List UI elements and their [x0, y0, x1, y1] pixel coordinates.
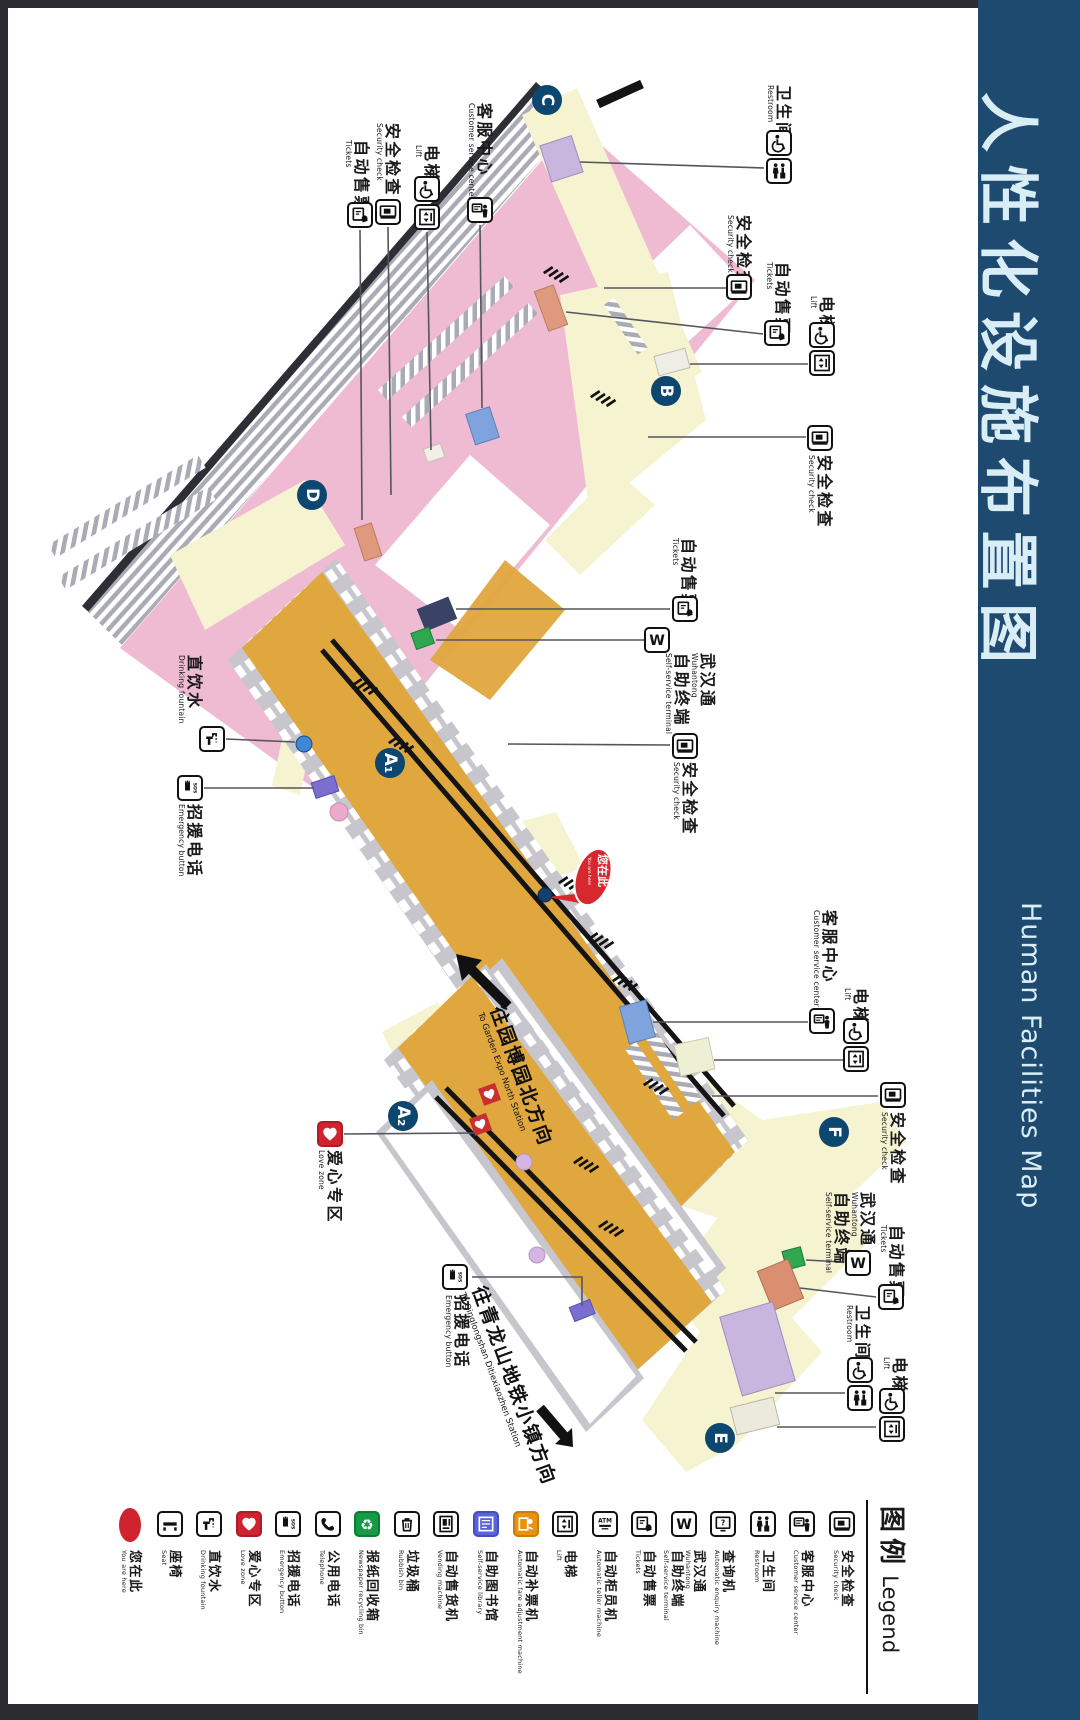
- drinking-fountain-marker: [296, 736, 312, 752]
- seat-marker-a1: [330, 803, 348, 821]
- legend-enquiry-text: 查询机Automatic enquiry machine: [712, 1550, 734, 1645]
- legend-phone-text: 公用电话Telephone: [317, 1550, 339, 1608]
- entrance-badge-B: B: [651, 376, 681, 406]
- csc-legend-icon: [789, 1511, 815, 1537]
- svg-text:W: W: [676, 1517, 692, 1533]
- legend-heart-text: 爱心专区Love zone: [238, 1550, 260, 1608]
- wheelchair-icon: [766, 130, 792, 156]
- legend-fareadj-text: 自动补票机Automatic fare adjustment machine: [515, 1550, 537, 1674]
- lift-icon: [809, 350, 835, 376]
- w-icon: W: [845, 1250, 871, 1276]
- entrance-badge-E: E: [705, 1423, 735, 1453]
- tvm-icon: [764, 320, 790, 346]
- vending-legend-icon: [433, 1511, 459, 1537]
- entrance-badge-A: A₂: [388, 1101, 418, 1131]
- legend-recycle-text: 报纸回收箱Newspaper recycling bin: [357, 1550, 379, 1635]
- svg-text:W: W: [850, 1256, 866, 1272]
- page-title-zh: 人性化设施布置图: [969, 92, 1056, 676]
- legend-security-text: 安全检查Security check: [831, 1550, 853, 1608]
- sos-icon: SOS: [177, 775, 203, 801]
- svg-text:?: ?: [721, 1519, 725, 1528]
- tvm-icon: [347, 202, 373, 228]
- legend-wc-text: 卫生间Restroom: [752, 1550, 774, 1594]
- fountain-a1-text: 直饮水Drinking fountain: [177, 655, 203, 724]
- security-c-text: 安全检查Security check: [375, 123, 401, 197]
- security-icon: [807, 425, 833, 451]
- security-icon: [880, 1082, 906, 1108]
- legend-seat-text: 座椅Seat: [159, 1550, 181, 1579]
- svg-text:♻: ♻: [361, 1516, 374, 1534]
- you-are-here-en: You are here: [586, 856, 592, 885]
- legend-w-text: 武汉通Wuhantong自助终端Self-service terminal: [661, 1550, 705, 1621]
- facilities-map-page: 您在此 You are here 人性化设施布置图 Human Faciliti…: [0, 0, 1080, 1720]
- seat-marker-a2-1: [516, 1154, 532, 1170]
- security-mid-text: 安全检查Security check: [672, 762, 698, 836]
- faucet-legend-icon: [196, 1511, 222, 1537]
- lift-icon: [879, 1416, 905, 1442]
- tvm-icon: [672, 596, 698, 622]
- page-title-en: Human Facilities Map: [1015, 902, 1046, 1209]
- legend-sos-text: 招援电话Emergency button: [277, 1550, 299, 1613]
- wheelchair-icon: [809, 322, 835, 348]
- w-icon: W: [644, 627, 670, 653]
- heart-legend-icon: [236, 1511, 262, 1537]
- legend-youarehere-text: 您在此You are here: [119, 1550, 141, 1594]
- security-mid-leader: [508, 744, 670, 745]
- sos-legend-icon: SOS: [275, 1511, 301, 1537]
- enquiry-legend-icon: ?: [710, 1511, 736, 1537]
- legend-vending-text: 自动售货机Vending machine: [436, 1550, 458, 1623]
- entrance-badge-D: D: [297, 480, 327, 510]
- entrance-badge-F: F: [819, 1117, 849, 1147]
- sos-a1-text: 招援电话Emergency button: [177, 804, 203, 878]
- legend-csc-text: 客服中心Customer service center: [792, 1550, 814, 1635]
- title-bar: 人性化设施布置图 Human Facilities Map: [978, 0, 1080, 1720]
- legend-library-text: 自助图书馆Self-service library: [475, 1550, 497, 1623]
- security-icon: [672, 733, 698, 759]
- svg-text:ATM: ATM: [598, 1518, 612, 1524]
- csc-f-text: 客服中心Customer service center: [812, 910, 838, 1007]
- seat-marker-a2-2: [529, 1247, 545, 1263]
- security-b2-text: 安全检查Security check: [807, 455, 833, 529]
- legend-divider: [866, 1500, 868, 1694]
- legend-header-en: Legend: [878, 1575, 902, 1653]
- restroom-e-text: 卫生间Restroom: [845, 1305, 871, 1361]
- csc-c-text: 客服中心Customer service center: [467, 103, 493, 200]
- wuhantong-mid-text: 武汉通Wuhantong自助终端Self-service terminal: [664, 653, 716, 734]
- csc-icon: [467, 197, 493, 223]
- security-icon: [726, 274, 752, 300]
- tvm-legend-icon: [631, 1511, 657, 1537]
- atm-legend-icon: ATM: [592, 1511, 618, 1537]
- legend-tvm-text: 自动售票Tickets: [633, 1550, 655, 1608]
- entrance-badge-A: A₁: [375, 748, 405, 778]
- legend-atm-text: 自动柜员机Automatic teller machine: [594, 1550, 616, 1637]
- legend-lift-text: 电梯Lift: [554, 1550, 576, 1579]
- legend-header-zh: 图例: [876, 1506, 906, 1570]
- phone-legend-icon: [315, 1511, 341, 1537]
- frame-bottom: [0, 1704, 978, 1720]
- lovezone-a2-text: 爱心专区Love zone: [317, 1150, 343, 1224]
- seat-legend-icon: [157, 1511, 183, 1537]
- wheelchair-icon: [414, 176, 440, 202]
- you-are-here-legend-marker: [119, 1508, 141, 1542]
- frame-left: [0, 0, 8, 1720]
- lift-icon: [843, 1046, 869, 1072]
- svg-text:SOS: SOS: [191, 783, 197, 794]
- security-f-text: 安全检查Security check: [880, 1112, 906, 1186]
- wc-legend-icon: [750, 1511, 776, 1537]
- sos-a2-text: 招援电话Emergency button: [444, 1295, 470, 1369]
- csc-icon: [809, 1008, 835, 1034]
- wc-icon: [766, 158, 792, 184]
- you-are-here-dot: [538, 888, 552, 902]
- entrance-badge-C: C: [532, 85, 562, 115]
- recycle-legend-icon: ♻: [354, 1511, 380, 1537]
- svg-text:SOS: SOS: [456, 1272, 462, 1283]
- wc-icon: [847, 1385, 873, 1411]
- lift-icon: [414, 204, 440, 230]
- heart-icon: [317, 1121, 343, 1147]
- lift-legend-icon: [552, 1511, 578, 1537]
- wheelchair-icon: [843, 1018, 869, 1044]
- wheelchair-icon: [879, 1388, 905, 1414]
- fareadj-legend-icon: [513, 1511, 539, 1537]
- security-icon: [375, 199, 401, 225]
- security-legend-icon: [829, 1511, 855, 1537]
- w-legend-icon: W: [671, 1511, 697, 1537]
- legend-bin-text: 垃圾桶Rubbish bin: [396, 1550, 418, 1594]
- lovezone-a2-leader: [344, 1133, 476, 1134]
- bin-legend-icon: [394, 1511, 420, 1537]
- svg-text:SOS: SOS: [290, 1519, 296, 1530]
- legend-faucet-text: 直饮水Drinking fountain: [198, 1550, 220, 1610]
- sos-icon: SOS: [442, 1264, 468, 1290]
- faucet-icon: [199, 726, 225, 752]
- svg-text:W: W: [649, 633, 665, 649]
- lift-box-f: [674, 1038, 715, 1077]
- wheelchair-icon: [847, 1357, 873, 1383]
- frame-top: [0, 0, 978, 8]
- legend-header: 图例 Legend: [876, 1506, 905, 1653]
- you-are-here-zh: 您在此: [596, 854, 610, 887]
- library-legend-icon: [473, 1511, 499, 1537]
- tvm-icon: [878, 1284, 904, 1310]
